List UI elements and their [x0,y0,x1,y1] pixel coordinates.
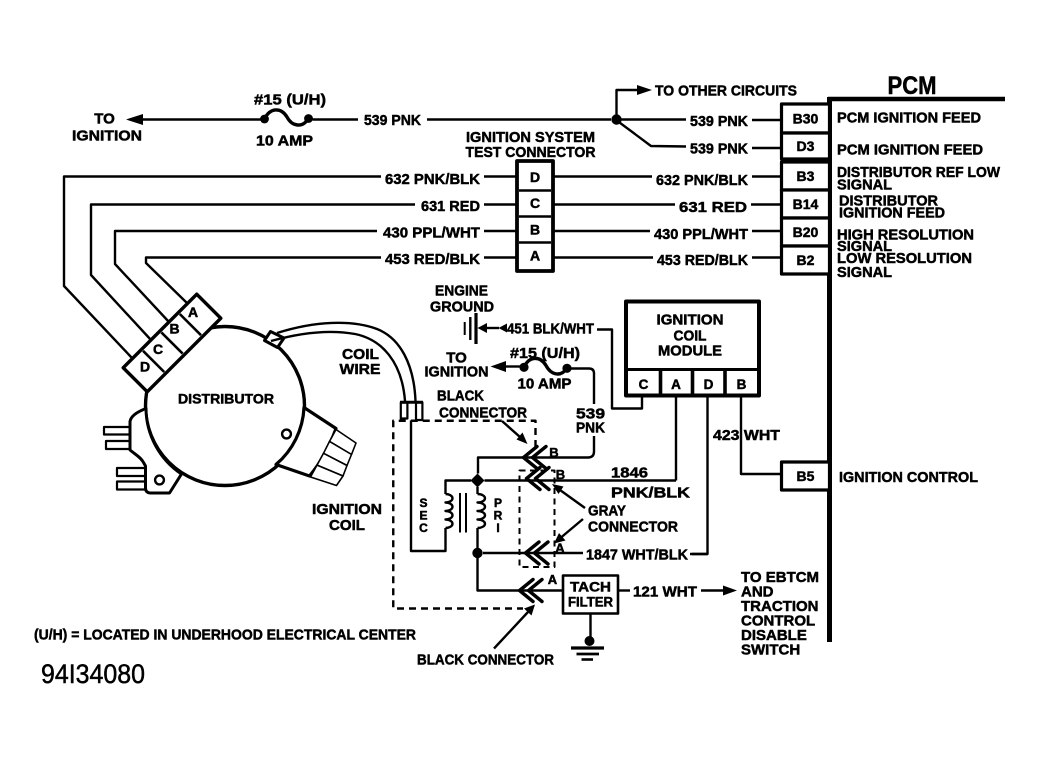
svg-text:A: A [548,572,558,587]
svg-text:430 PPL/WHT: 430 PPL/WHT [383,225,480,242]
svg-text:TACH: TACH [570,580,611,595]
svg-text:PNK: PNK [576,420,605,437]
svg-text:IGNITION: IGNITION [657,312,724,329]
svg-text:IGNITION FEED: IGNITION FEED [839,205,945,222]
svg-text:453 RED/BLK: 453 RED/BLK [385,251,480,268]
svg-text:GRAY: GRAY [588,503,626,520]
svg-text:GROUND: GROUND [430,299,494,316]
svg-text:A: A [671,377,681,392]
svg-text:DISTRIBUTOR: DISTRIBUTOR [178,392,274,407]
svg-text:SIGNAL: SIGNAL [837,264,892,281]
svg-text:TO: TO [94,111,115,128]
svg-text:MODULE: MODULE [658,343,722,360]
svg-text:B3: B3 [797,168,815,184]
svg-text:IGNITION: IGNITION [72,128,142,145]
svg-text:C: C [639,377,649,392]
svg-text:A: A [530,248,540,264]
svg-text:FILTER: FILTER [568,595,613,610]
svg-text:D: D [704,377,714,392]
svg-text:121 WHT: 121 WHT [633,584,697,601]
svg-text:631 RED: 631 RED [421,198,480,215]
svg-text:539 PNK: 539 PNK [364,112,421,129]
svg-text:SWITCH: SWITCH [741,642,800,659]
svg-text:423 WHT: 423 WHT [713,427,780,444]
svg-text:B: B [530,222,540,238]
svg-text:ENGINE: ENGINE [435,283,488,300]
svg-text:D: D [140,359,150,375]
svg-text:B: B [169,321,179,337]
svg-text:B2: B2 [797,252,815,268]
svg-text:631 RED: 631 RED [679,199,747,216]
svg-text:B20: B20 [793,224,819,240]
svg-text:BLACK: BLACK [437,388,484,405]
svg-text:632 PNK/BLK: 632 PNK/BLK [656,172,748,189]
svg-text:PCM IGNITION FEED: PCM IGNITION FEED [837,142,983,159]
svg-text:10 AMP: 10 AMP [256,133,313,150]
svg-text:1846: 1846 [611,465,648,482]
svg-text:D: D [530,169,540,185]
svg-text:94I34080: 94I34080 [41,659,145,689]
svg-text:IGNITION CONTROL: IGNITION CONTROL [839,469,978,486]
svg-text:430 PPL/WHT: 430 PPL/WHT [654,226,748,243]
svg-text:BLACK CONNECTOR: BLACK CONNECTOR [417,652,554,669]
svg-text:(U/H) = LOCATED IN UNDERHOOD E: (U/H) = LOCATED IN UNDERHOOD ELECTRICAL … [34,627,416,644]
svg-text:#15 (U/H): #15 (U/H) [510,345,580,362]
svg-text:SIGNAL: SIGNAL [837,177,892,194]
svg-text:IGNITION: IGNITION [312,501,382,518]
svg-text:451 BLK/WHT: 451 BLK/WHT [507,321,594,338]
svg-text:PNK/BLK: PNK/BLK [611,485,690,502]
svg-text:PCM IGNITION FEED: PCM IGNITION FEED [837,110,981,127]
svg-text:CONNECTOR: CONNECTOR [439,405,527,422]
svg-text:CONNECTOR: CONNECTOR [588,519,678,536]
svg-text:B5: B5 [797,468,815,484]
svg-text:632 PNK/BLK: 632 PNK/BLK [385,171,480,188]
svg-text:PCM: PCM [888,72,937,100]
svg-text:C: C [153,341,163,357]
svg-text:B: B [737,377,747,392]
svg-text:B14: B14 [793,196,819,212]
svg-text:COIL: COIL [329,517,365,534]
svg-text:539 PNK: 539 PNK [690,113,748,130]
svg-text:C: C [419,521,428,535]
svg-text:B: B [556,467,565,482]
svg-text:B: B [549,445,558,460]
svg-text:TO OTHER CIRCUITS: TO OTHER CIRCUITS [655,83,797,100]
svg-text:539 PNK: 539 PNK [690,141,748,158]
svg-text:WIRE: WIRE [340,361,381,378]
svg-text:C: C [530,195,540,211]
svg-text:#15 (U/H): #15 (U/H) [254,92,326,109]
svg-text:IGNITION: IGNITION [425,364,489,381]
svg-text:1847 WHT/BLK: 1847 WHT/BLK [586,547,688,564]
svg-text:A: A [188,304,198,320]
svg-text:TEST CONNECTOR: TEST CONNECTOR [466,144,596,161]
svg-text:453 RED/BLK: 453 RED/BLK [657,252,748,269]
svg-text:B30: B30 [793,111,819,127]
svg-text:D3: D3 [797,138,815,154]
svg-text:10 AMP: 10 AMP [518,376,572,393]
svg-text:I: I [496,521,499,535]
